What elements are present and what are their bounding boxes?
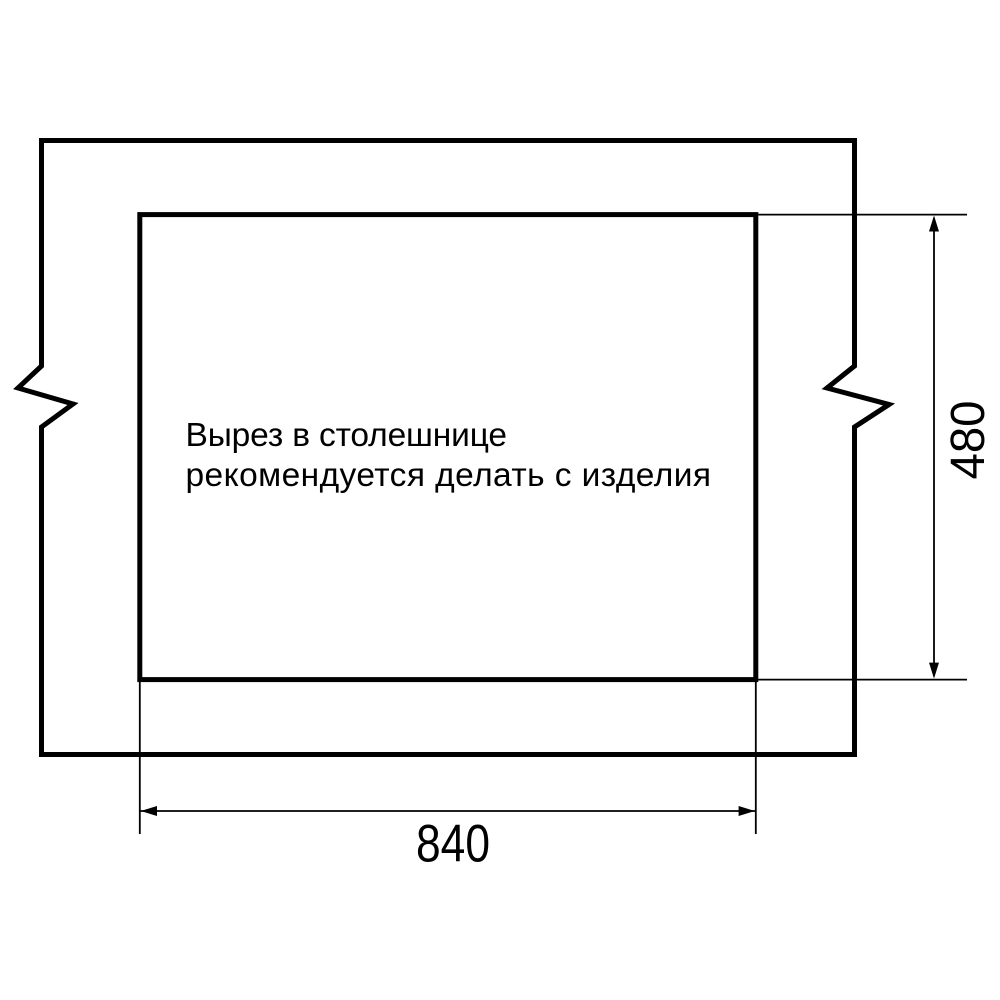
svg-text:840: 840 [416,815,490,874]
svg-text:480: 480 [942,401,995,480]
svg-text:Вырез в столешнице: Вырез в столешнице [186,417,508,454]
svg-text:рекомендуется делать с изделия: рекомендуется делать с изделия [186,457,712,494]
